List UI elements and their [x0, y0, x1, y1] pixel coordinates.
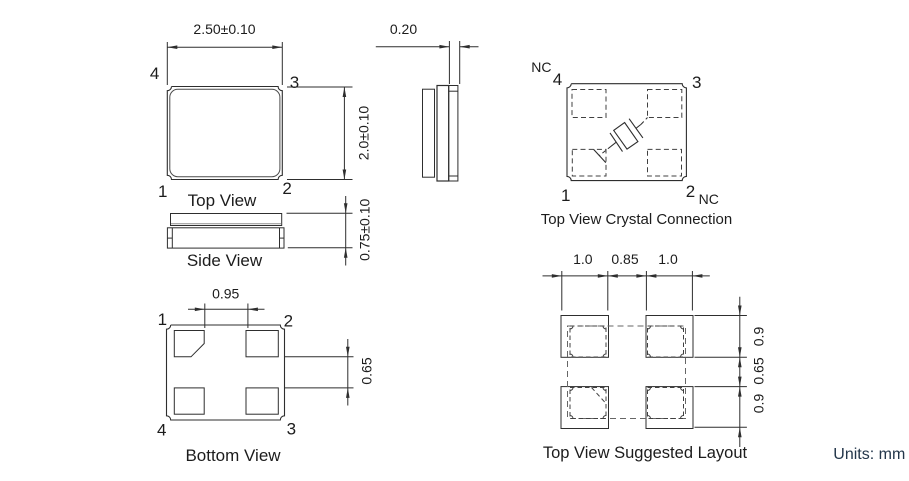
svg-text:NC: NC — [531, 59, 551, 75]
svg-text:2: 2 — [282, 179, 291, 198]
svg-text:3: 3 — [692, 73, 701, 92]
svg-text:Top View: Top View — [188, 191, 257, 210]
svg-text:3: 3 — [290, 73, 299, 92]
svg-text:0.65: 0.65 — [359, 357, 375, 384]
svg-text:1.0: 1.0 — [573, 251, 593, 267]
svg-text:4: 4 — [150, 64, 159, 83]
svg-text:Bottom View: Bottom View — [185, 446, 281, 465]
svg-text:2.50±0.10: 2.50±0.10 — [193, 21, 255, 37]
svg-text:0.95: 0.95 — [212, 286, 239, 302]
svg-text:1.0: 1.0 — [658, 251, 678, 267]
svg-text:0.75±0.10: 0.75±0.10 — [357, 199, 373, 261]
svg-text:4: 4 — [553, 70, 562, 89]
svg-text:Units: mm: Units: mm — [833, 446, 905, 463]
svg-text:Side View: Side View — [187, 251, 263, 270]
svg-text:0.9: 0.9 — [751, 394, 767, 414]
svg-text:0.20: 0.20 — [390, 21, 417, 37]
svg-text:2: 2 — [686, 182, 695, 201]
svg-text:1: 1 — [158, 182, 167, 201]
svg-text:Top View Crystal Connection: Top View Crystal Connection — [541, 211, 732, 228]
svg-text:Top View Suggested Layout: Top View Suggested Layout — [543, 444, 748, 462]
svg-text:0.65: 0.65 — [751, 357, 767, 384]
svg-text:0.85: 0.85 — [611, 251, 638, 267]
svg-text:1: 1 — [158, 310, 167, 329]
svg-text:2: 2 — [284, 312, 293, 331]
svg-text:0.9: 0.9 — [751, 327, 767, 347]
svg-text:2.0±0.10: 2.0±0.10 — [356, 106, 372, 161]
svg-text:3: 3 — [287, 420, 296, 439]
svg-text:4: 4 — [157, 421, 166, 440]
svg-text:NC: NC — [699, 191, 719, 207]
svg-text:1: 1 — [561, 186, 570, 205]
